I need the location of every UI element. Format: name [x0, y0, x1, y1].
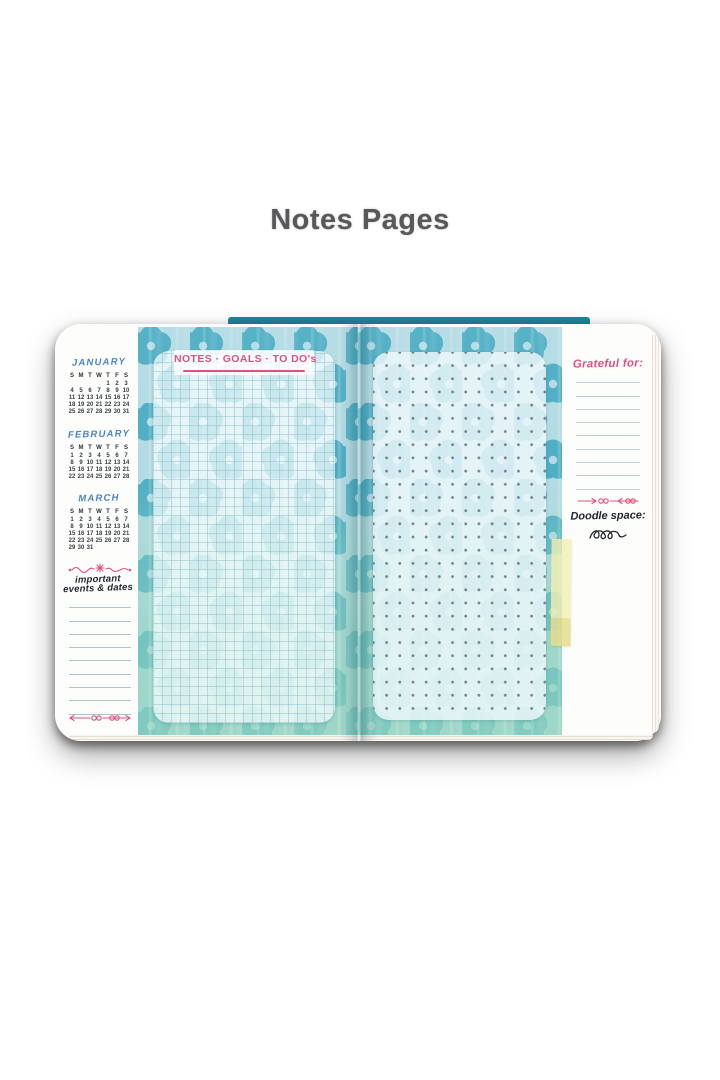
day-cell: 2	[77, 452, 86, 459]
month-title: JANUARY	[64, 356, 134, 369]
ruled-line	[576, 410, 640, 423]
day-cell: 11	[68, 394, 77, 401]
day-cell: 22	[68, 473, 77, 480]
day-cell: 1	[104, 380, 113, 387]
ruled-line	[576, 370, 640, 383]
flower-cover-right	[358, 327, 562, 737]
day-header: T	[104, 507, 113, 516]
day-cell: 12	[104, 459, 113, 466]
ruled-line	[69, 622, 131, 635]
day-header: S	[122, 371, 131, 380]
doodle-swirl-icon	[588, 527, 628, 547]
day-header: M	[77, 443, 86, 452]
day-cell: 18	[95, 466, 104, 473]
day-header: T	[104, 371, 113, 380]
day-cell	[86, 380, 95, 387]
day-cell: 16	[77, 466, 86, 473]
ruled-line	[576, 436, 640, 449]
day-cell	[95, 380, 104, 387]
day-cell: 25	[95, 537, 104, 544]
day-cell: 31	[86, 544, 95, 551]
day-cell: 27	[113, 537, 122, 544]
day-cell: 25	[68, 408, 77, 415]
day-cell: 14	[122, 459, 131, 466]
doodle-heading: Doodle space:	[562, 509, 654, 523]
day-header: T	[86, 371, 95, 380]
day-cell: 8	[104, 387, 113, 394]
grateful-ruled-lines	[576, 370, 640, 490]
day-cell: 10	[122, 387, 131, 394]
ruled-line	[576, 463, 640, 476]
ruled-line	[69, 661, 131, 674]
ruled-line	[69, 675, 131, 688]
day-cell: 23	[77, 473, 86, 480]
day-cell: 7	[122, 516, 131, 523]
day-header: T	[104, 443, 113, 452]
day-cell: 3	[122, 380, 131, 387]
day-cell: 23	[77, 537, 86, 544]
ruled-line	[576, 450, 640, 463]
day-cell: 21	[95, 401, 104, 408]
day-cell: 11	[95, 459, 104, 466]
day-cell: 16	[113, 394, 122, 401]
ruled-line	[576, 476, 640, 489]
day-cell: 13	[113, 459, 122, 466]
notes-grid-panel: NOTES · GOALS · TO DO's	[153, 351, 335, 723]
day-header: W	[95, 507, 104, 516]
events-ruled-lines	[69, 595, 131, 715]
day-cell: 2	[77, 516, 86, 523]
day-cell: 4	[95, 452, 104, 459]
day-cell: 24	[86, 537, 95, 544]
day-header: S	[122, 443, 131, 452]
dot-grid-panel	[373, 352, 546, 720]
day-header: W	[95, 371, 104, 380]
day-cell: 15	[68, 530, 77, 537]
ruled-line	[576, 423, 640, 436]
mini-calendar-march: MARCHSMTWTFS1234567891011121314151617181…	[64, 493, 134, 551]
ruled-line	[69, 688, 131, 701]
day-cell: 12	[104, 523, 113, 530]
day-header: S	[122, 507, 131, 516]
day-cell	[113, 544, 122, 551]
day-cell: 21	[122, 530, 131, 537]
day-cell: 2	[113, 380, 122, 387]
open-planner-notebook: JANUARYSMTWTFS12345678910111213141516171…	[55, 324, 661, 741]
calendar-grid: SMTWTFS123456789101112131415161718192021…	[68, 371, 131, 415]
day-cell	[68, 380, 77, 387]
day-header: S	[68, 507, 77, 516]
day-cell: 1	[68, 516, 77, 523]
day-cell: 4	[95, 516, 104, 523]
ruled-line	[69, 608, 131, 621]
day-cell: 5	[104, 516, 113, 523]
day-cell: 15	[104, 394, 113, 401]
day-cell: 19	[77, 401, 86, 408]
day-cell	[95, 544, 104, 551]
day-cell	[104, 544, 113, 551]
day-cell: 18	[68, 401, 77, 408]
page-stack-edge	[69, 735, 653, 740]
day-cell: 11	[95, 523, 104, 530]
day-cell: 12	[77, 394, 86, 401]
month-title: FEBRUARY	[64, 428, 134, 441]
day-cell: 20	[86, 401, 95, 408]
day-cell: 3	[86, 516, 95, 523]
day-cell: 14	[95, 394, 104, 401]
day-cell: 26	[104, 537, 113, 544]
day-cell: 29	[68, 544, 77, 551]
day-cell: 10	[86, 523, 95, 530]
mini-calendar-january: JANUARYSMTWTFS12345678910111213141516171…	[64, 357, 134, 415]
day-cell: 13	[86, 394, 95, 401]
day-header: T	[86, 507, 95, 516]
day-cell: 29	[104, 408, 113, 415]
day-header: M	[77, 507, 86, 516]
day-cell: 4	[68, 387, 77, 394]
day-header: F	[113, 443, 122, 452]
ruled-line	[576, 397, 640, 410]
day-cell: 24	[86, 473, 95, 480]
day-cell: 17	[86, 466, 95, 473]
day-cell: 9	[77, 523, 86, 530]
ruled-line	[69, 648, 131, 661]
day-cell	[122, 544, 131, 551]
calendar-grid: SMTWTFS123456789101112131415161718192021…	[68, 443, 131, 480]
day-cell: 18	[95, 530, 104, 537]
day-cell: 6	[86, 387, 95, 394]
day-cell: 30	[113, 408, 122, 415]
day-cell: 19	[104, 466, 113, 473]
page-title: Notes Pages	[0, 204, 720, 237]
day-header: M	[77, 371, 86, 380]
day-cell: 26	[104, 473, 113, 480]
day-cell: 14	[122, 523, 131, 530]
day-cell: 20	[113, 530, 122, 537]
day-cell: 27	[86, 408, 95, 415]
day-cell: 28	[122, 473, 131, 480]
day-cell: 24	[122, 401, 131, 408]
day-header: S	[68, 443, 77, 452]
notes-header-label: NOTES · GOALS · TO DO's	[174, 350, 314, 375]
day-cell: 31	[122, 408, 131, 415]
day-cell: 20	[113, 466, 122, 473]
calendar-grid: SMTWTFS123456789101112131415161718192021…	[68, 507, 131, 551]
day-cell: 6	[113, 452, 122, 459]
day-header: F	[113, 371, 122, 380]
day-cell: 3	[86, 452, 95, 459]
day-header: W	[95, 443, 104, 452]
notes-header-text: NOTES · GOALS · TO DO's	[174, 353, 314, 365]
day-cell: 28	[122, 537, 131, 544]
day-cell: 1	[68, 452, 77, 459]
day-cell: 13	[113, 523, 122, 530]
day-cell: 8	[68, 523, 77, 530]
month-title: MARCH	[64, 492, 134, 505]
day-cell: 21	[122, 466, 131, 473]
day-cell	[77, 380, 86, 387]
left-calendar-column: JANUARYSMTWTFS12345678910111213141516171…	[55, 324, 138, 741]
day-cell: 17	[122, 394, 131, 401]
day-cell: 5	[104, 452, 113, 459]
day-cell: 5	[77, 387, 86, 394]
day-cell: 27	[113, 473, 122, 480]
day-cell: 9	[113, 387, 122, 394]
events-heading: important events & dates	[59, 575, 138, 595]
day-cell: 17	[86, 530, 95, 537]
ruled-line	[69, 635, 131, 648]
day-cell: 7	[95, 387, 104, 394]
product-photo-stage: Notes Pages JANUARYSMTWTFS12345678910111…	[0, 0, 720, 1080]
day-cell: 19	[104, 530, 113, 537]
arrow-divider-icon	[68, 711, 132, 729]
day-header: F	[113, 507, 122, 516]
day-cell: 22	[104, 401, 113, 408]
day-cell: 8	[68, 459, 77, 466]
day-cell: 22	[68, 537, 77, 544]
day-cell: 16	[77, 530, 86, 537]
day-cell: 28	[95, 408, 104, 415]
sticky-tab	[550, 539, 571, 646]
day-cell: 9	[77, 459, 86, 466]
day-cell: 10	[86, 459, 95, 466]
day-cell: 23	[113, 401, 122, 408]
day-cell: 26	[77, 408, 86, 415]
day-header: T	[86, 443, 95, 452]
grateful-heading: Grateful for:	[562, 357, 654, 371]
day-cell: 6	[113, 516, 122, 523]
day-cell: 30	[77, 544, 86, 551]
day-cell: 7	[122, 452, 131, 459]
ruled-line	[69, 595, 131, 608]
day-header: S	[68, 371, 77, 380]
mini-calendar-february: FEBRUARYSMTWTFS1234567891011121314151617…	[64, 429, 134, 480]
notes-header-underline	[183, 370, 305, 372]
day-cell: 25	[95, 473, 104, 480]
day-cell: 15	[68, 466, 77, 473]
flower-cover-left: NOTES · GOALS · TO DO's	[138, 327, 358, 737]
ruled-line	[576, 383, 640, 396]
page-stack-edge	[652, 334, 659, 733]
right-journaling-column: Grateful for: Doodle space:	[562, 324, 661, 741]
